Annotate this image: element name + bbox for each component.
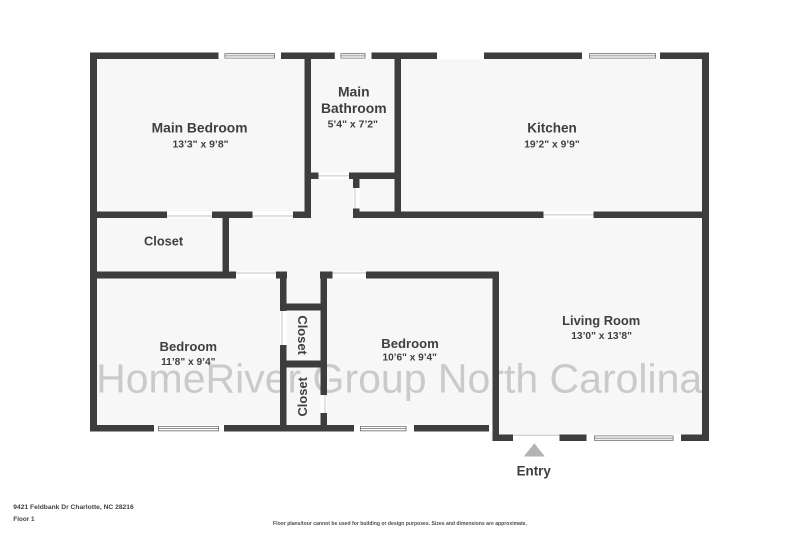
svg-text:Closet: Closet	[295, 315, 310, 355]
svg-text:Floor 1: Floor 1	[13, 516, 35, 523]
svg-text:Closet: Closet	[295, 376, 310, 416]
svg-text:Closet: Closet	[144, 234, 184, 249]
svg-text:19’2" x 9’9": 19’2" x 9’9"	[524, 139, 580, 150]
svg-text:13’3" x 9’8": 13’3" x 9’8"	[172, 139, 228, 150]
svg-text:Main Bedroom: Main Bedroom	[152, 121, 248, 136]
svg-text:Main: Main	[338, 84, 370, 100]
svg-text:13’0" x 13’8": 13’0" x 13’8"	[571, 331, 632, 342]
svg-text:Bathroom: Bathroom	[321, 100, 387, 116]
svg-text:11’8" x 9’4": 11’8" x 9’4"	[161, 357, 216, 368]
svg-text:Entry: Entry	[517, 464, 552, 479]
svg-text:5’4" x 7’2": 5’4" x 7’2"	[328, 119, 378, 130]
svg-text:Kitchen: Kitchen	[527, 121, 577, 136]
svg-text:Floor plans/tour cannot be use: Floor plans/tour cannot be used for buil…	[273, 521, 527, 527]
svg-text:9421 Feldbank Dr Charlotte, NC: 9421 Feldbank Dr Charlotte, NC 28216	[13, 504, 134, 511]
svg-text:Bedroom: Bedroom	[381, 336, 438, 351]
svg-text:10’6" x 9’4": 10’6" x 9’4"	[382, 352, 437, 363]
svg-text:Bedroom: Bedroom	[160, 339, 217, 354]
svg-text:Living Room: Living Room	[562, 313, 640, 328]
